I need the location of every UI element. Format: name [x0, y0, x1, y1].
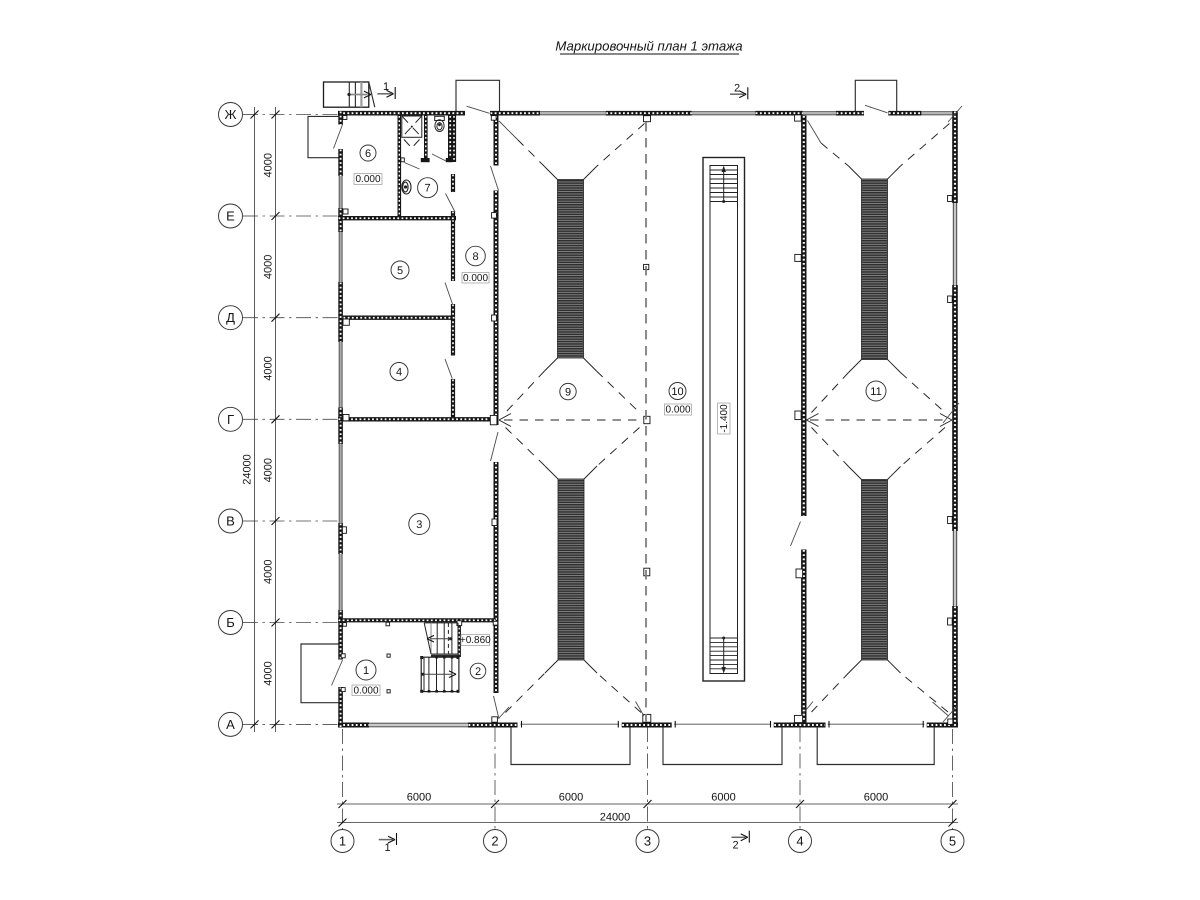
svg-text:0.000: 0.000	[353, 685, 378, 696]
svg-text:1: 1	[383, 81, 389, 93]
svg-text:Маркировочный план 1 этажа: Маркировочный план 1 этажа	[555, 39, 742, 54]
svg-text:0.000: 0.000	[463, 273, 488, 284]
svg-text:1: 1	[339, 834, 346, 849]
svg-text:2: 2	[732, 840, 738, 852]
svg-text:2: 2	[475, 666, 481, 678]
svg-text:4000: 4000	[263, 153, 275, 177]
svg-text:Д: Д	[226, 310, 235, 325]
svg-text:0.000: 0.000	[355, 174, 380, 185]
svg-text:Е: Е	[226, 209, 235, 224]
svg-text:24000: 24000	[600, 812, 631, 824]
svg-text:В: В	[226, 514, 235, 529]
svg-text:6000: 6000	[711, 792, 735, 804]
svg-text:6000: 6000	[864, 792, 888, 804]
svg-text:6: 6	[365, 148, 371, 160]
svg-text:4000: 4000	[263, 661, 275, 685]
svg-text:4: 4	[796, 834, 803, 849]
svg-text:9: 9	[565, 387, 571, 399]
svg-text:3: 3	[644, 834, 651, 849]
svg-text:-1.400: -1.400	[719, 404, 730, 433]
svg-text:4: 4	[396, 367, 402, 379]
svg-text:10: 10	[671, 386, 683, 398]
svg-text:6000: 6000	[407, 792, 431, 804]
svg-text:3: 3	[416, 519, 422, 531]
svg-text:6000: 6000	[559, 792, 583, 804]
svg-text:Ж: Ж	[224, 107, 236, 122]
svg-text:0.000: 0.000	[665, 405, 690, 416]
svg-text:А: А	[226, 717, 235, 732]
svg-text:+0.860: +0.860	[460, 635, 491, 646]
svg-text:1: 1	[384, 842, 390, 854]
svg-text:4000: 4000	[263, 255, 275, 279]
svg-text:8: 8	[472, 251, 478, 263]
svg-text:4000: 4000	[263, 458, 275, 482]
svg-text:7: 7	[425, 183, 431, 195]
svg-text:11: 11	[870, 386, 881, 398]
svg-text:Б: Б	[226, 615, 235, 630]
svg-text:4000: 4000	[263, 560, 275, 584]
svg-text:2: 2	[491, 834, 498, 849]
svg-text:24000: 24000	[242, 454, 254, 485]
svg-text:5: 5	[397, 265, 403, 277]
svg-text:5: 5	[949, 834, 956, 849]
svg-text:2: 2	[734, 82, 740, 94]
svg-text:1: 1	[363, 665, 369, 677]
svg-text:4000: 4000	[263, 356, 275, 380]
svg-text:Г: Г	[227, 412, 234, 427]
